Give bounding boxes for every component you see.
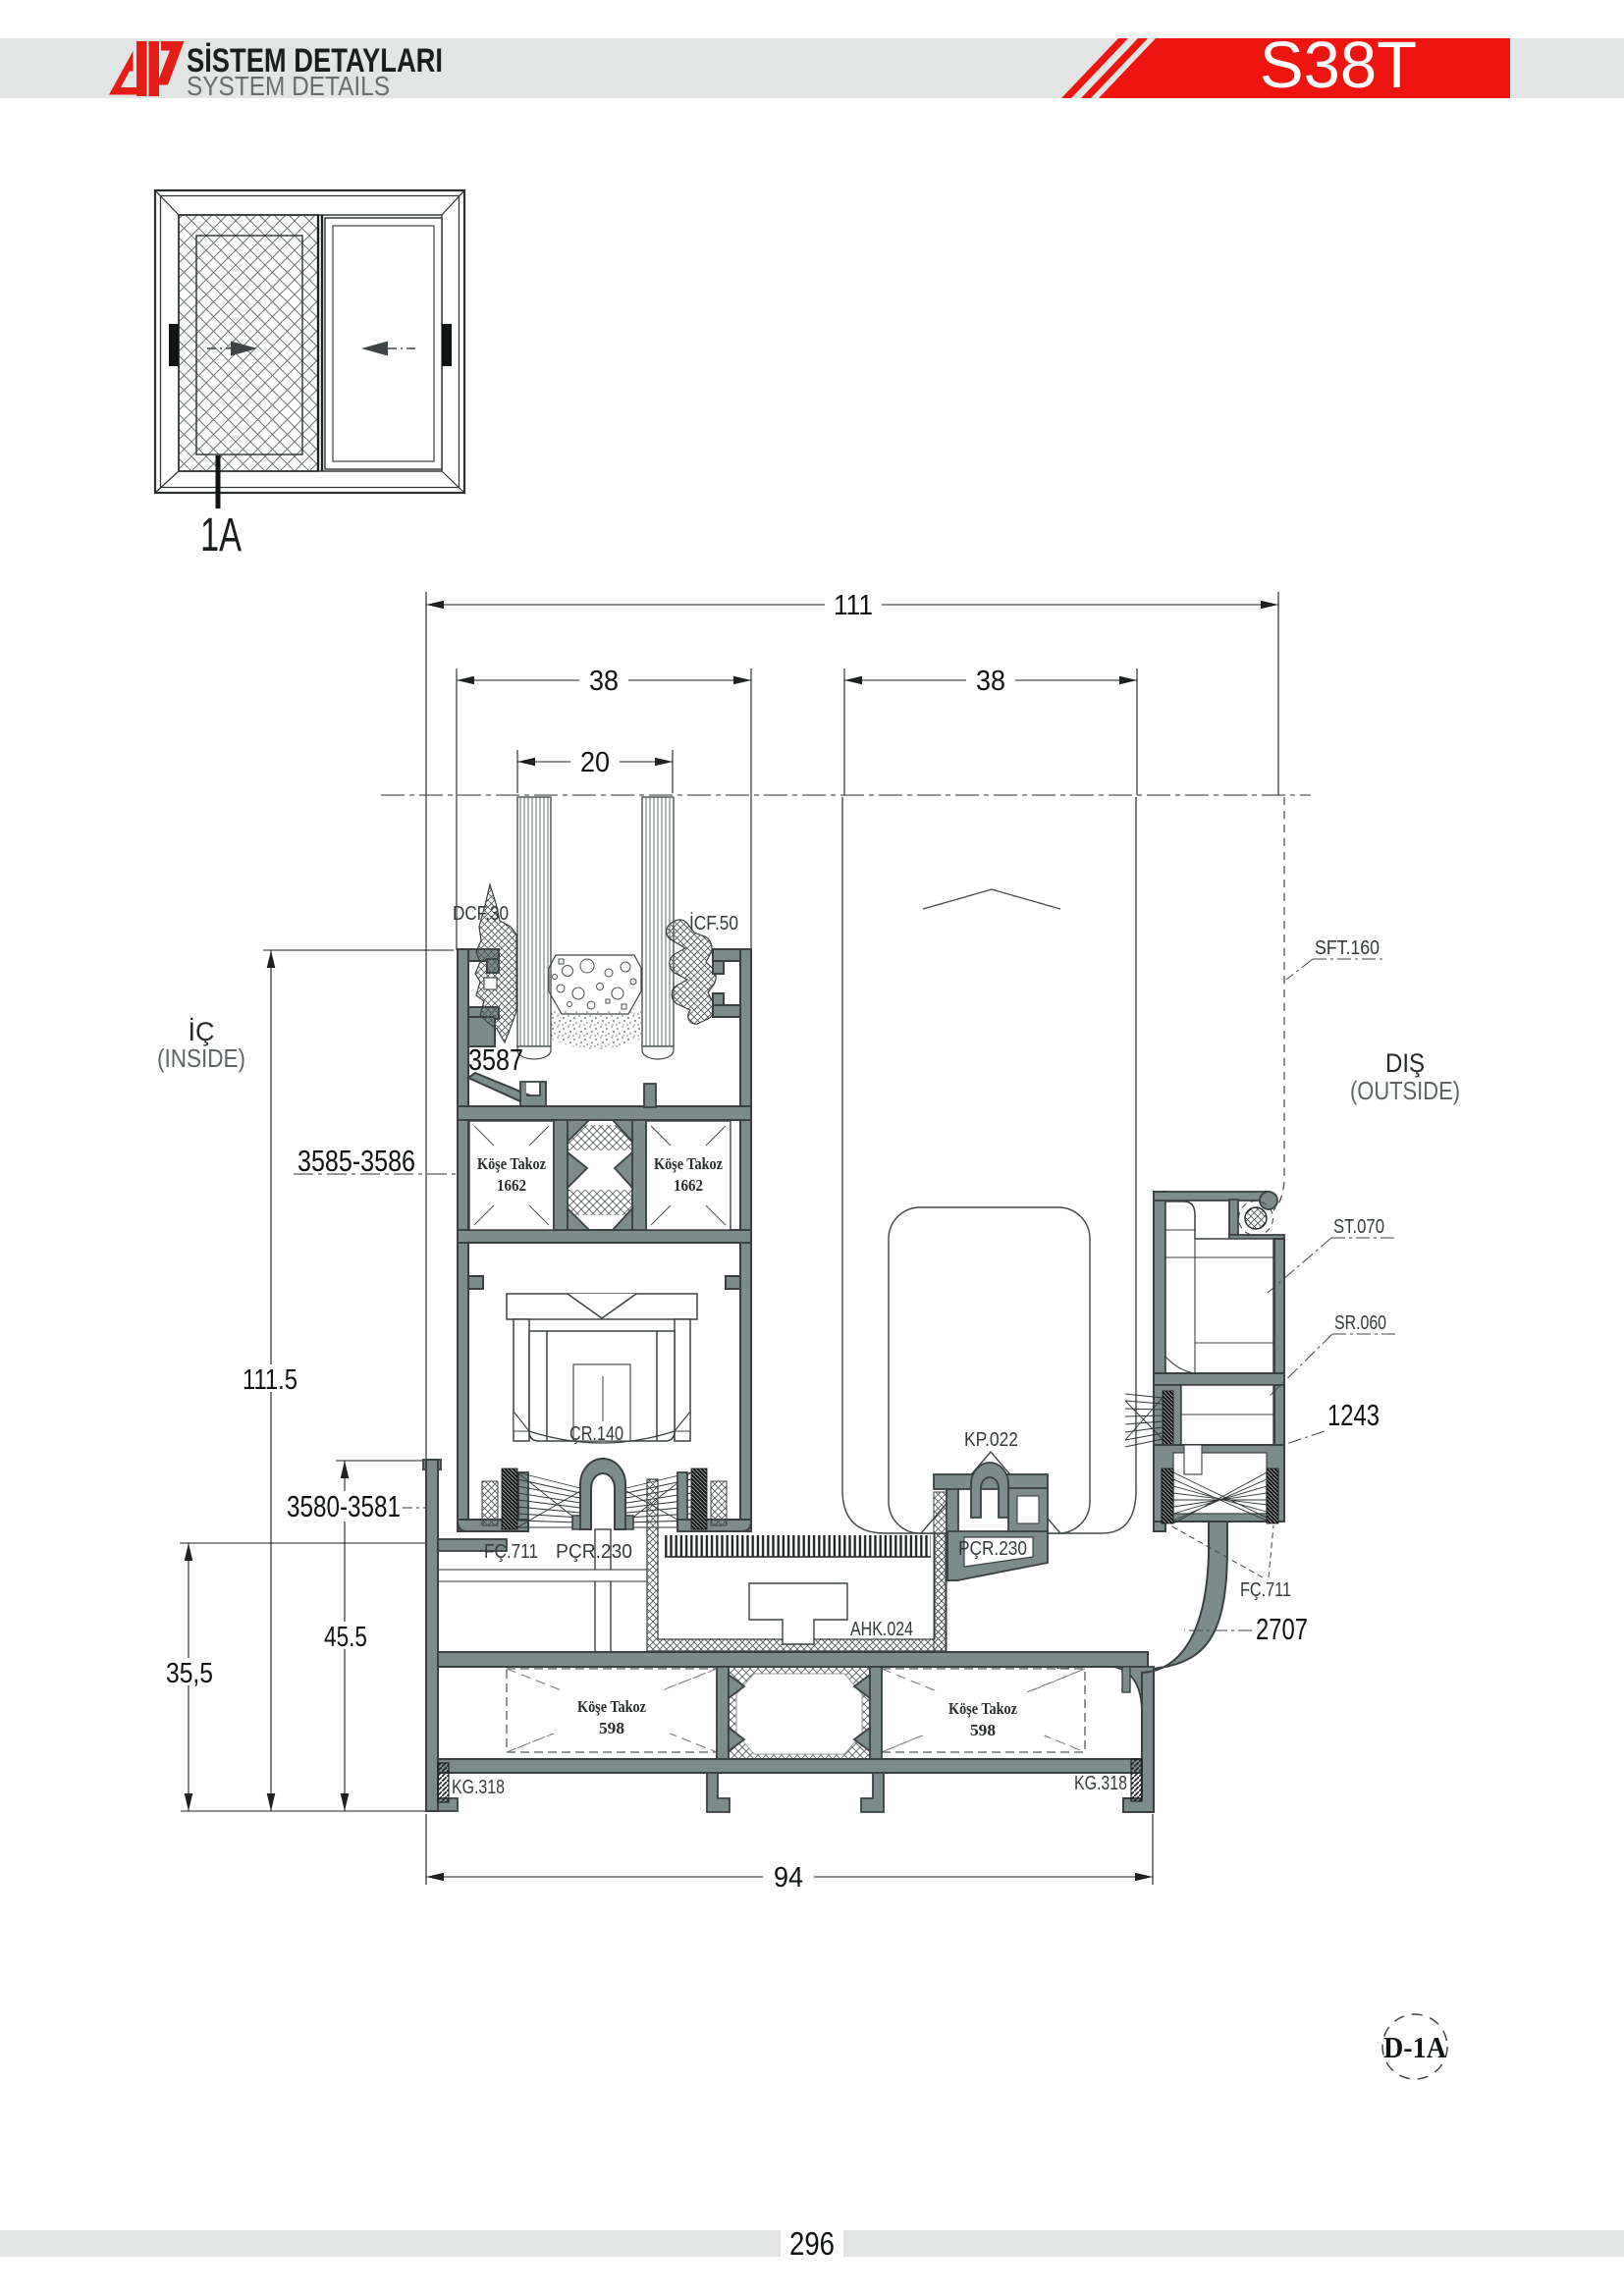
svg-text:ST.070: ST.070 (1333, 1216, 1384, 1238)
svg-text:35,5: 35,5 (166, 1658, 213, 1689)
svg-text:DIŞ: DIŞ (1385, 1048, 1425, 1078)
svg-text:SFT.160: SFT.160 (1315, 937, 1380, 959)
svg-text:3585-3586: 3585-3586 (298, 1144, 415, 1178)
svg-text:1662: 1662 (497, 1176, 526, 1195)
svg-text:2707: 2707 (1256, 1612, 1308, 1646)
svg-text:PÇR.230: PÇR.230 (556, 1541, 632, 1563)
svg-text:1662: 1662 (674, 1176, 703, 1195)
svg-text:PÇR.230: PÇR.230 (958, 1538, 1027, 1560)
svg-text:KP.022: KP.022 (964, 1429, 1018, 1451)
svg-text:38: 38 (976, 666, 1005, 697)
svg-text:1A: 1A (200, 509, 242, 561)
svg-text:296: 296 (789, 2225, 835, 2262)
svg-text:KG.318: KG.318 (452, 1777, 505, 1798)
svg-text:598: 598 (599, 1719, 624, 1737)
svg-text:(INSIDE): (INSIDE) (157, 1043, 245, 1073)
svg-text:İÇ: İÇ (189, 1016, 215, 1046)
svg-text:Köşe Takoz: Köşe Takoz (654, 1154, 723, 1173)
svg-text:Köşe Takoz: Köşe Takoz (577, 1697, 646, 1716)
svg-text:D-1A: D-1A (1383, 2030, 1447, 2064)
svg-text:Köşe Takoz: Köşe Takoz (948, 1699, 1017, 1718)
svg-text:20: 20 (580, 747, 610, 778)
svg-text:45.5: 45.5 (324, 1622, 367, 1653)
svg-text:Köşe Takoz: Köşe Takoz (477, 1154, 546, 1173)
svg-text:598: 598 (970, 1721, 996, 1739)
svg-text:DCF.30: DCF.30 (453, 903, 509, 925)
svg-text:94: 94 (774, 1862, 803, 1894)
svg-text:111.5: 111.5 (243, 1364, 298, 1396)
svg-text:AHK.024: AHK.024 (850, 1619, 913, 1640)
svg-text:SR.060: SR.060 (1334, 1312, 1386, 1334)
svg-text:3587: 3587 (468, 1042, 523, 1077)
svg-text:FÇ.711: FÇ.711 (484, 1541, 538, 1563)
svg-text:S38T: S38T (1260, 28, 1417, 102)
svg-text:KG.318: KG.318 (1074, 1773, 1127, 1794)
svg-text:FÇ.711: FÇ.711 (1240, 1579, 1291, 1601)
svg-text:(OUTSIDE): (OUTSIDE) (1350, 1076, 1460, 1105)
svg-text:SYSTEM DETAILS: SYSTEM DETAILS (187, 71, 390, 101)
svg-text:3580-3581: 3580-3581 (287, 1489, 401, 1523)
svg-text:İCF.50: İCF.50 (689, 912, 738, 934)
svg-text:38: 38 (589, 666, 619, 697)
svg-text:1243: 1243 (1327, 1398, 1380, 1432)
svg-text:ÇR.140: ÇR.140 (569, 1423, 623, 1445)
svg-text:111: 111 (834, 590, 873, 621)
